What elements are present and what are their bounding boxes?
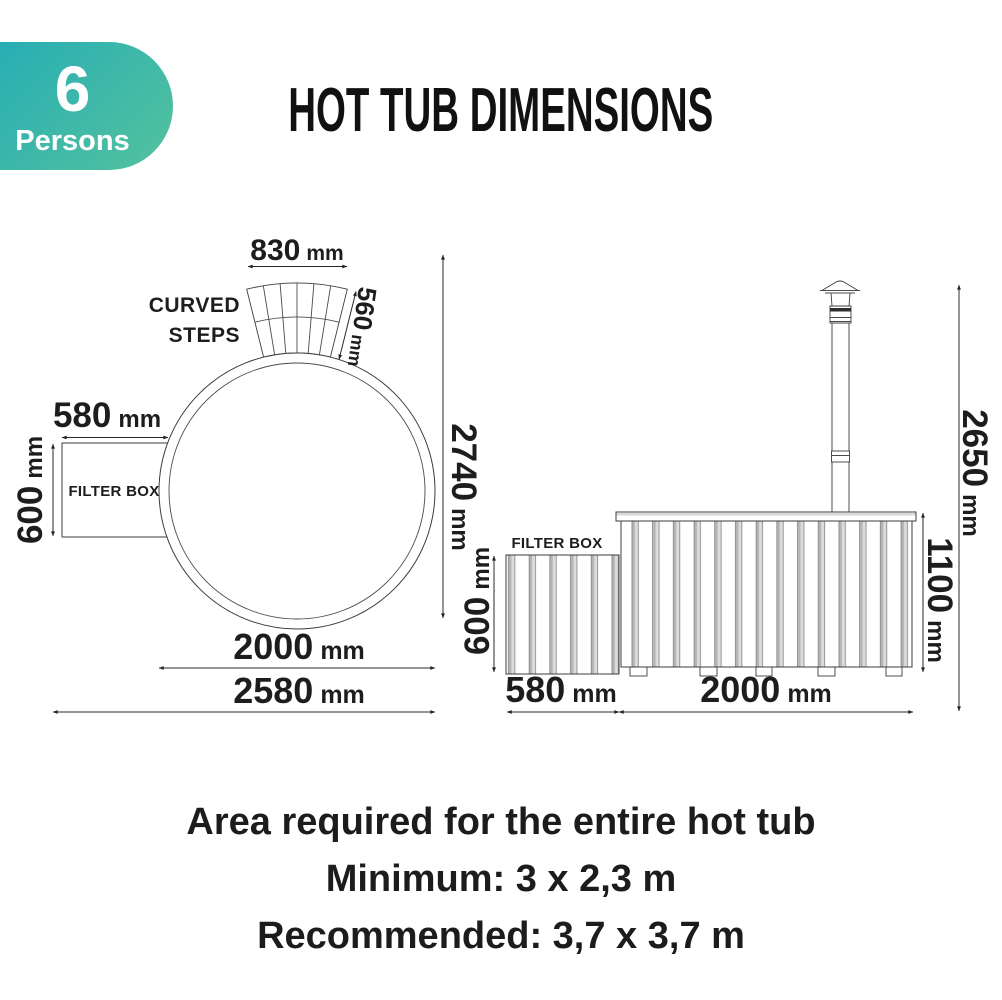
chimney-cap: [820, 281, 860, 293]
chimney-neck: [831, 293, 850, 306]
side-filter-box-label: FILTER BOX: [511, 535, 602, 552]
area-required-text: Area required for the entire hot tub: [0, 794, 1002, 851]
filter-box-label: FILTER BOX: [68, 483, 159, 500]
dim-830-label: 830mm: [250, 234, 343, 267]
dimension-diagrams: FILTER BOX CURVED STEPS 830mm 560mm 580m…: [0, 215, 1002, 765]
tub-rim: [616, 512, 916, 521]
curved-steps-label-line1: CURVED: [149, 294, 240, 317]
minimum-area-text: Minimum: 3 x 2,3 m: [0, 851, 1002, 908]
side-filter-box: [506, 555, 619, 674]
chimney-pipe: [832, 323, 849, 513]
dim-2000-side-label: 2000mm: [700, 669, 832, 710]
curved-steps-label-line2: STEPS: [169, 324, 240, 347]
dim-580-label: 580mm: [53, 396, 161, 435]
side-view-diagram: FILTER BOX 2650mm 1100mm 600mm 580mm 200…: [458, 281, 994, 712]
tub-circle-outer: [159, 353, 435, 629]
dim-2650-label: 2650mm: [955, 409, 994, 537]
dim-600-label: 600mm: [11, 436, 50, 544]
page-title: HOT TUB DIMENSIONS: [0, 80, 1002, 142]
dim-2580-label: 2580mm: [233, 670, 365, 711]
recommended-area-text: Recommended: 3,7 x 3,7 m: [0, 908, 1002, 965]
area-requirements: Area required for the entire hot tub Min…: [0, 794, 1002, 965]
tub-body: [621, 521, 912, 667]
dim-2740-label: 2740mm: [444, 423, 483, 551]
dim-1100-label: 1100mm: [920, 537, 959, 663]
chimney-band: [832, 451, 850, 462]
chimney-collar: [830, 306, 851, 323]
dim-600-side-label: 600mm: [458, 547, 497, 655]
top-view-diagram: FILTER BOX CURVED STEPS 830mm 560mm 580m…: [11, 234, 483, 712]
dim-560-label: 560mm: [342, 285, 383, 369]
dim-2000-label: 2000mm: [233, 626, 365, 667]
dim-580-side-label: 580mm: [505, 669, 617, 710]
chimney: [820, 281, 860, 513]
